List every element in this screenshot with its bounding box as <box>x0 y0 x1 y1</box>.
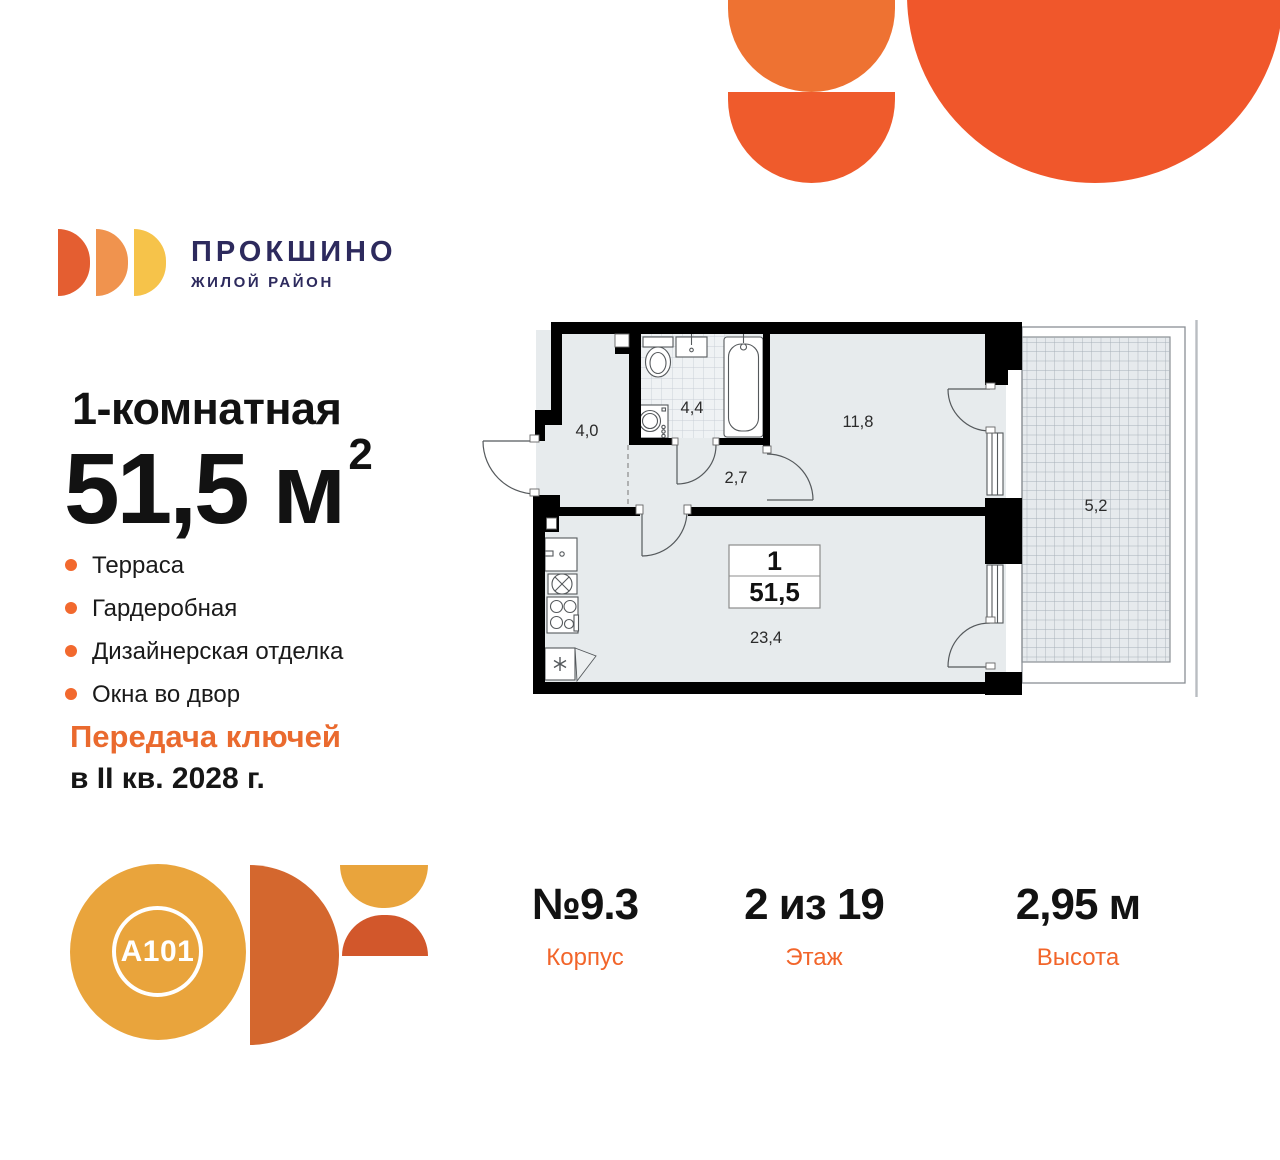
feature-label: Окна во двор <box>92 681 240 708</box>
area-superscript: 2 <box>348 430 372 479</box>
brand-disc-1-icon <box>58 229 90 296</box>
brand-logo-icon <box>58 229 166 296</box>
toilet-icon <box>643 337 673 377</box>
room-label-hall: 4,0 <box>576 422 599 440</box>
handover-label: Передача ключей <box>70 719 341 755</box>
summary-building: №9.3 Корпус <box>500 880 670 972</box>
deco-semicircle-light <box>728 0 895 92</box>
features-list: Терраса Гардеробная Дизайнерская отделка… <box>65 552 343 724</box>
handover-date: в II кв. 2028 г. <box>70 762 265 796</box>
developer-name: A101 <box>121 935 195 969</box>
deco-big-circle <box>907 0 1280 183</box>
developer-small-bottom-icon <box>342 915 428 956</box>
brand-text: ПРОКШИНО ЖИЛОЙ РАЙОН <box>191 238 397 291</box>
stove-icon <box>547 597 579 633</box>
summary-floor: 2 из 19 Этаж <box>728 880 900 972</box>
bullet-dot-icon <box>65 559 77 571</box>
floor-plan: 4,0 4,4 2,7 11,8 23,4 5,2 1 51,5 <box>470 310 1230 710</box>
rooms-title: 1-комнатная <box>72 383 341 435</box>
bathtub-icon <box>724 331 763 437</box>
brand-tagline: ЖИЛОЙ РАЙОН <box>191 274 397 291</box>
floor-plan-svg: 4,0 4,4 2,7 11,8 23,4 5,2 1 51,5 <box>470 310 1230 710</box>
bullet-dot-icon <box>65 645 77 657</box>
summary-ceiling-height: 2,95 м Высота <box>988 880 1168 972</box>
living-window <box>987 565 1003 623</box>
floor-label: Этаж <box>728 944 900 972</box>
bullet-dot-icon <box>65 688 77 700</box>
height-label: Высота <box>988 944 1168 972</box>
brand-name: ПРОКШИНО <box>191 238 397 267</box>
developer-small-top-icon <box>340 865 428 908</box>
room-label-bath: 4,4 <box>681 399 704 417</box>
room-label-terrace: 5,2 <box>1085 497 1108 515</box>
room-label-corridor: 2,7 <box>725 469 748 487</box>
flyer: { "brand": { "name": "ПРОКШИНО", "taglin… <box>0 0 1280 1160</box>
feature-label: Дизайнерская отделка <box>92 638 343 665</box>
brand-disc-3-icon <box>134 229 166 296</box>
feature-label: Терраса <box>92 552 184 579</box>
bullet-dot-icon <box>65 602 77 614</box>
deco-semicircle-dark <box>728 92 895 183</box>
kitchen-sink-icon <box>545 538 577 571</box>
height-value: 2,95 м <box>988 880 1168 930</box>
area-line: 51,5 м2 <box>64 432 369 547</box>
feature-wardrobe: Гардеробная <box>65 595 343 623</box>
feature-finish: Дизайнерская отделка <box>65 638 343 666</box>
feature-terrace: Терраса <box>65 552 343 580</box>
badge-area-value: 51,5 <box>749 577 800 607</box>
brand-logo: ПРОКШИНО ЖИЛОЙ РАЙОН <box>58 229 397 296</box>
developer-halfdisc-icon <box>250 865 339 1045</box>
building-label: Корпус <box>500 944 670 972</box>
room-label-living: 23,4 <box>750 629 782 647</box>
room-label-bedroom: 11,8 <box>843 413 874 431</box>
hob-icon <box>548 574 577 594</box>
terrace <box>1022 320 1197 697</box>
badge-room-count: 1 <box>767 546 782 576</box>
developer-ring-icon: A101 <box>112 906 203 997</box>
area-unit: м <box>247 433 345 545</box>
washing-machine-icon <box>637 405 668 438</box>
developer-logo: A101 <box>70 863 430 1048</box>
entrance-door <box>483 441 536 494</box>
building-value: №9.3 <box>500 880 670 930</box>
bedroom-window <box>987 433 1003 495</box>
area-value: 51,5 <box>64 433 247 545</box>
feature-label: Гардеробная <box>92 595 237 622</box>
brand-disc-2-icon <box>96 229 128 296</box>
feature-windows: Окна во двор <box>65 681 343 709</box>
floor-value: 2 из 19 <box>728 880 900 930</box>
apartment-badge: 1 51,5 <box>729 545 820 608</box>
